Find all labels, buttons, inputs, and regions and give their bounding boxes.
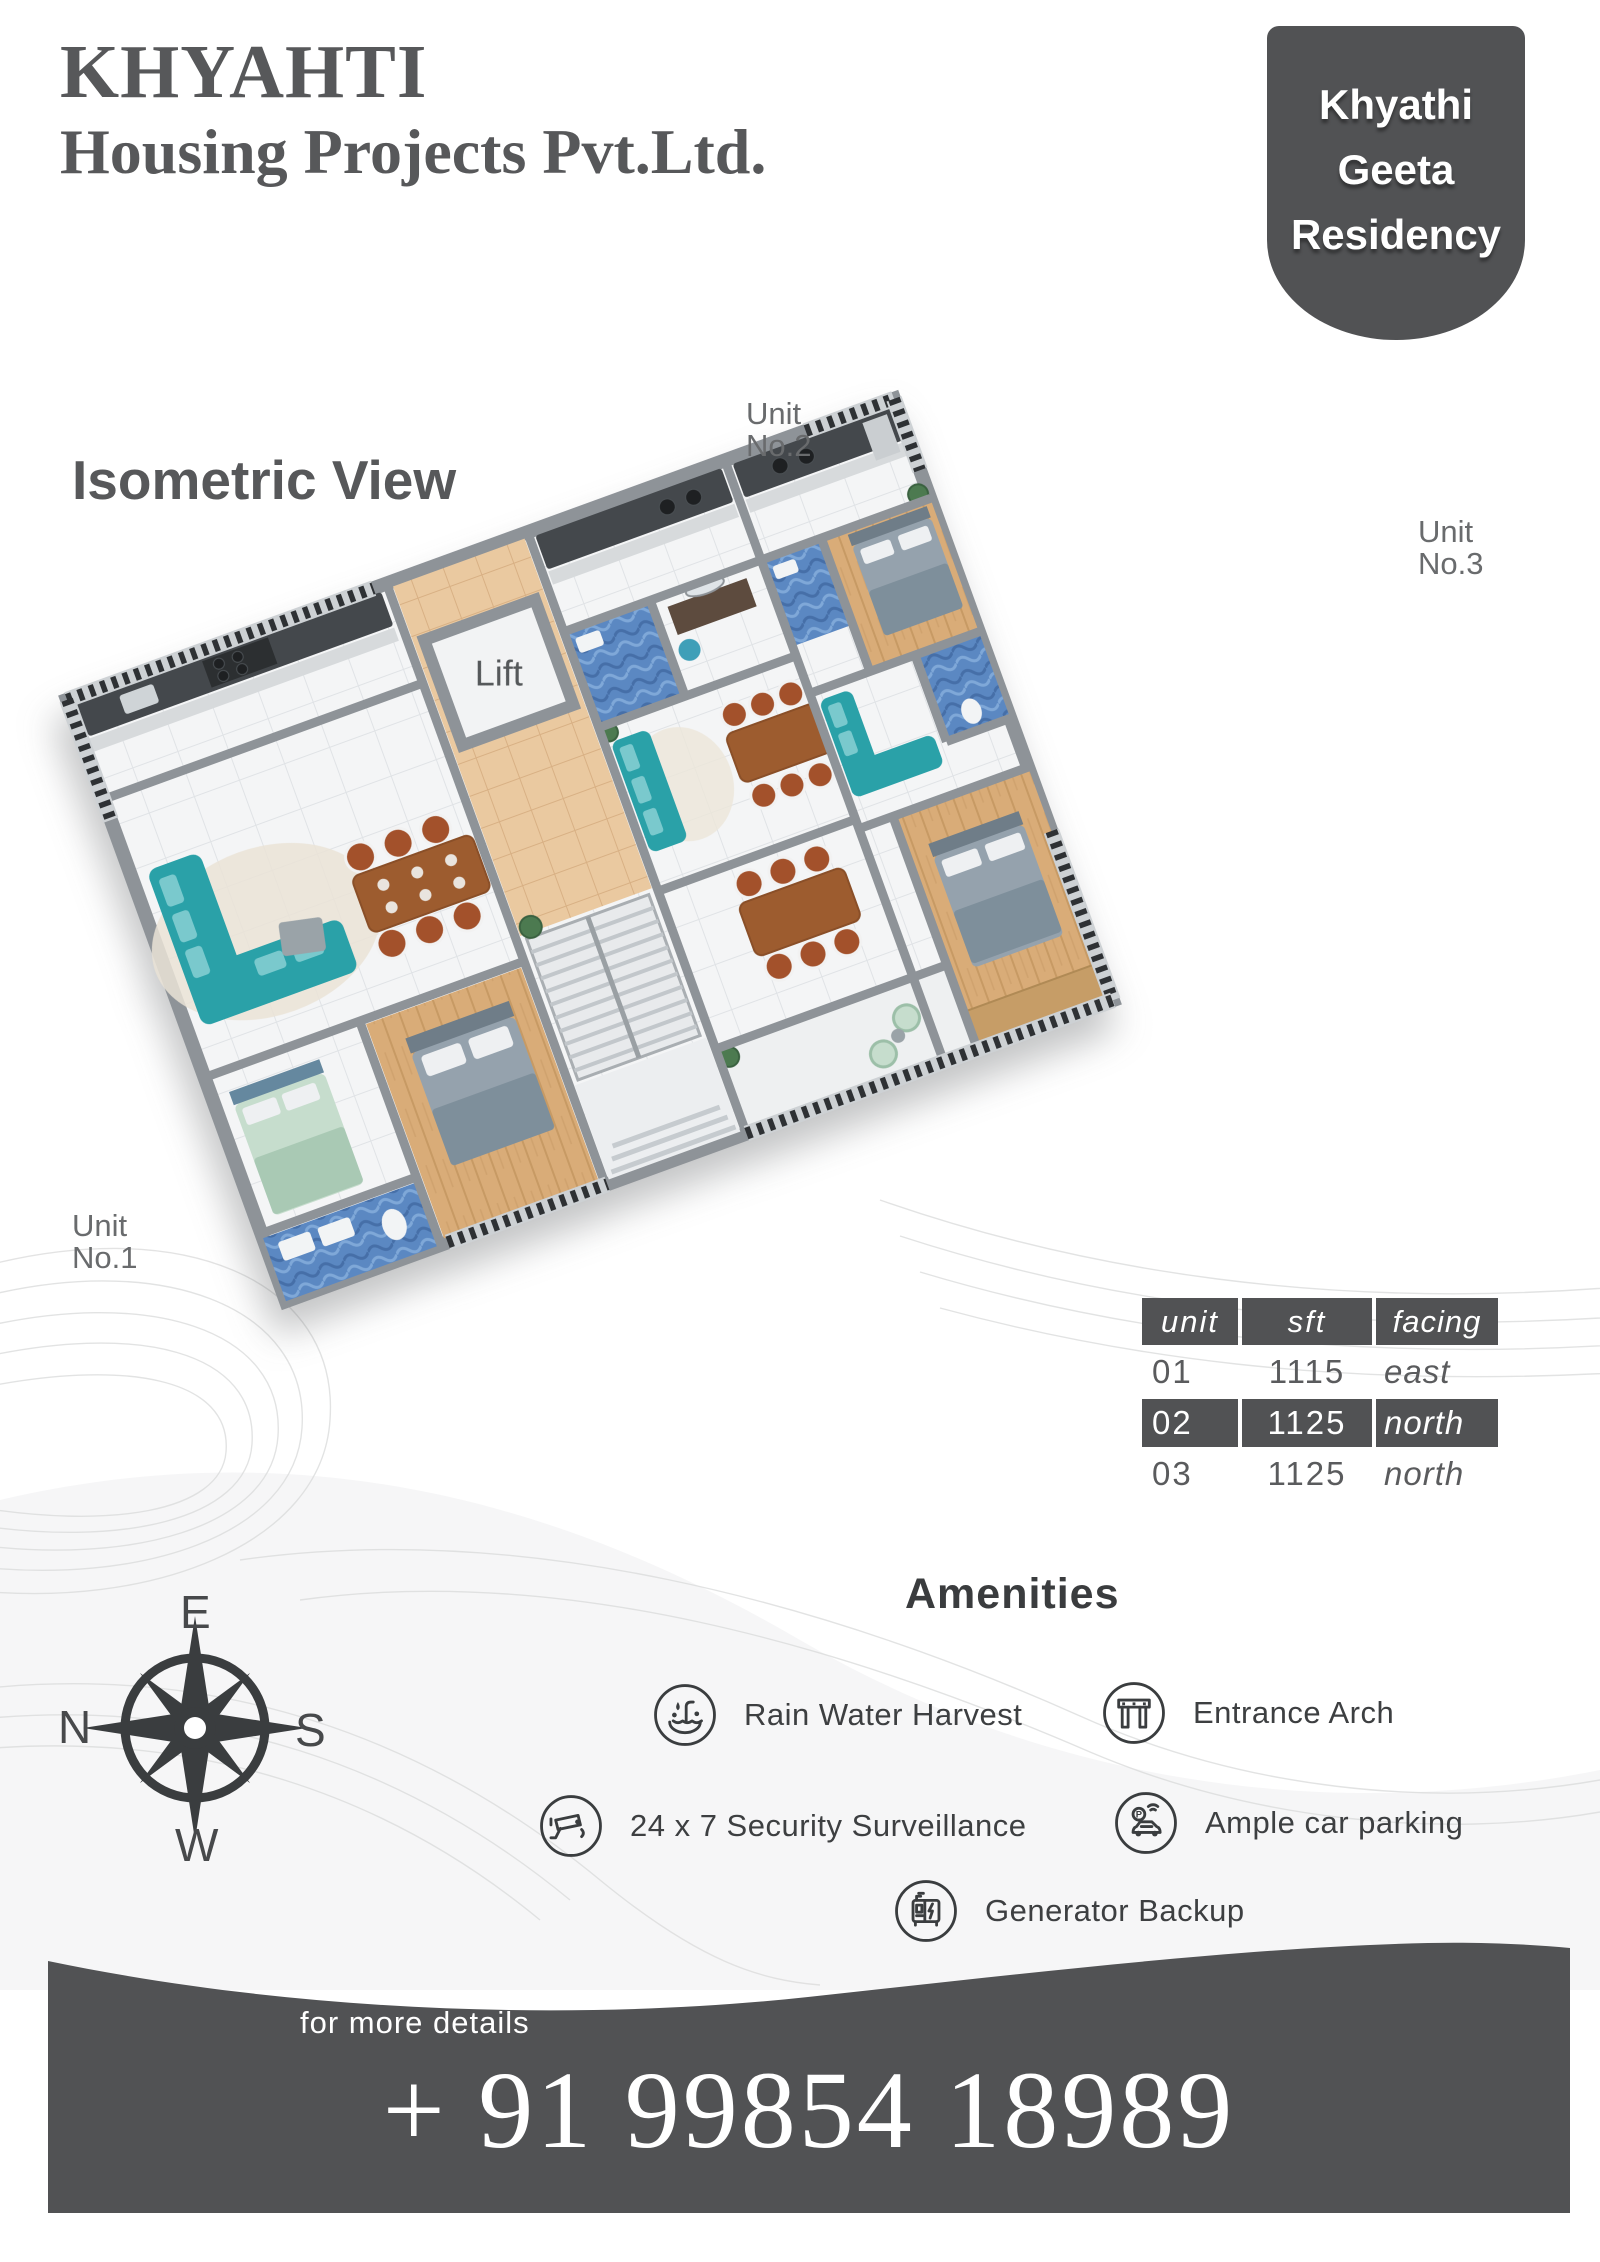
compass-letter-north: N <box>58 1700 91 1754</box>
badge-line: Geeta <box>1267 137 1525 202</box>
table-row: 01 1115 east <box>1142 1348 1498 1396</box>
footer-band: for more details + 91 99854 18989 <box>48 1935 1570 2213</box>
table-header-unit: unit <box>1142 1298 1238 1345</box>
amenity-label: 24 x 7 Security Surveillance <box>630 1808 1027 1844</box>
badge-line: Residency <box>1267 202 1525 267</box>
amenity-security-surveillance: 24 x 7 Security Surveillance <box>538 1792 1027 1860</box>
parking-letter: P <box>1136 1809 1142 1820</box>
amenity-label: Generator Backup <box>985 1893 1245 1929</box>
entrance-arch-icon <box>1101 1680 1167 1746</box>
amenity-rain-water-harvest: Rain Water Harvest <box>652 1681 1022 1749</box>
table-cell-unit: 02 <box>1142 1399 1238 1447</box>
table-header-facing: facing <box>1376 1298 1498 1345</box>
company-name-line1: KHYAHTI <box>60 34 766 110</box>
amenities-title: Amenities <box>905 1570 1120 1619</box>
compass-rose-icon <box>80 1613 310 1843</box>
table-cell-facing: east <box>1376 1348 1498 1396</box>
rain-water-harvest-icon <box>652 1682 718 1748</box>
cctv-camera-icon <box>538 1793 604 1859</box>
compass-letter-west: W <box>175 1818 218 1872</box>
table-cell-unit: 03 <box>1142 1450 1238 1498</box>
lift-label: Lift <box>475 652 523 693</box>
table-cell-facing: north <box>1376 1399 1498 1447</box>
table-row: 03 1125 north <box>1142 1450 1498 1498</box>
amenity-label: Ample car parking <box>1205 1805 1463 1841</box>
isometric-view-title: Isometric View <box>72 448 456 512</box>
amenity-entrance-arch: Entrance Arch <box>1101 1679 1394 1747</box>
table-header-sft: sft <box>1242 1298 1372 1345</box>
phone-number: + 91 99854 18989 <box>48 2047 1570 2174</box>
table-cell-sft: 1115 <box>1242 1348 1372 1396</box>
amenity-label: Rain Water Harvest <box>744 1697 1022 1733</box>
unit-label-3: Unit No.3 <box>1418 516 1483 579</box>
table-cell-facing: north <box>1376 1450 1498 1498</box>
car-parking-icon: P <box>1113 1790 1179 1856</box>
project-badge: Khyathi Geeta Residency <box>1267 26 1525 340</box>
table-row-highlighted: 02 1125 north <box>1142 1399 1498 1447</box>
unit-label-2: Unit No.2 <box>746 398 811 461</box>
table-cell-unit: 01 <box>1142 1348 1238 1396</box>
compass-letter-east: E <box>180 1585 211 1639</box>
for-more-details-text: for more details <box>300 2005 530 2041</box>
amenity-car-parking: P Ample car parking <box>1113 1789 1463 1857</box>
unit-label-1: Unit No.1 <box>72 1210 137 1273</box>
units-table: unit sft facing 01 1115 east 02 1125 nor… <box>1142 1298 1498 1501</box>
badge-line: Khyathi <box>1267 72 1525 137</box>
company-name: KHYAHTI Housing Projects Pvt.Ltd. <box>60 34 766 184</box>
table-cell-sft: 1125 <box>1242 1450 1372 1498</box>
compass-letter-south: S <box>295 1703 326 1757</box>
table-header-row: unit sft facing <box>1142 1298 1498 1345</box>
brochure-page: KHYAHTI Housing Projects Pvt.Ltd. Khyath… <box>0 0 1600 2262</box>
amenity-label: Entrance Arch <box>1193 1695 1394 1731</box>
company-name-line2: Housing Projects Pvt.Ltd. <box>60 120 766 184</box>
table-cell-sft: 1125 <box>1242 1399 1372 1447</box>
